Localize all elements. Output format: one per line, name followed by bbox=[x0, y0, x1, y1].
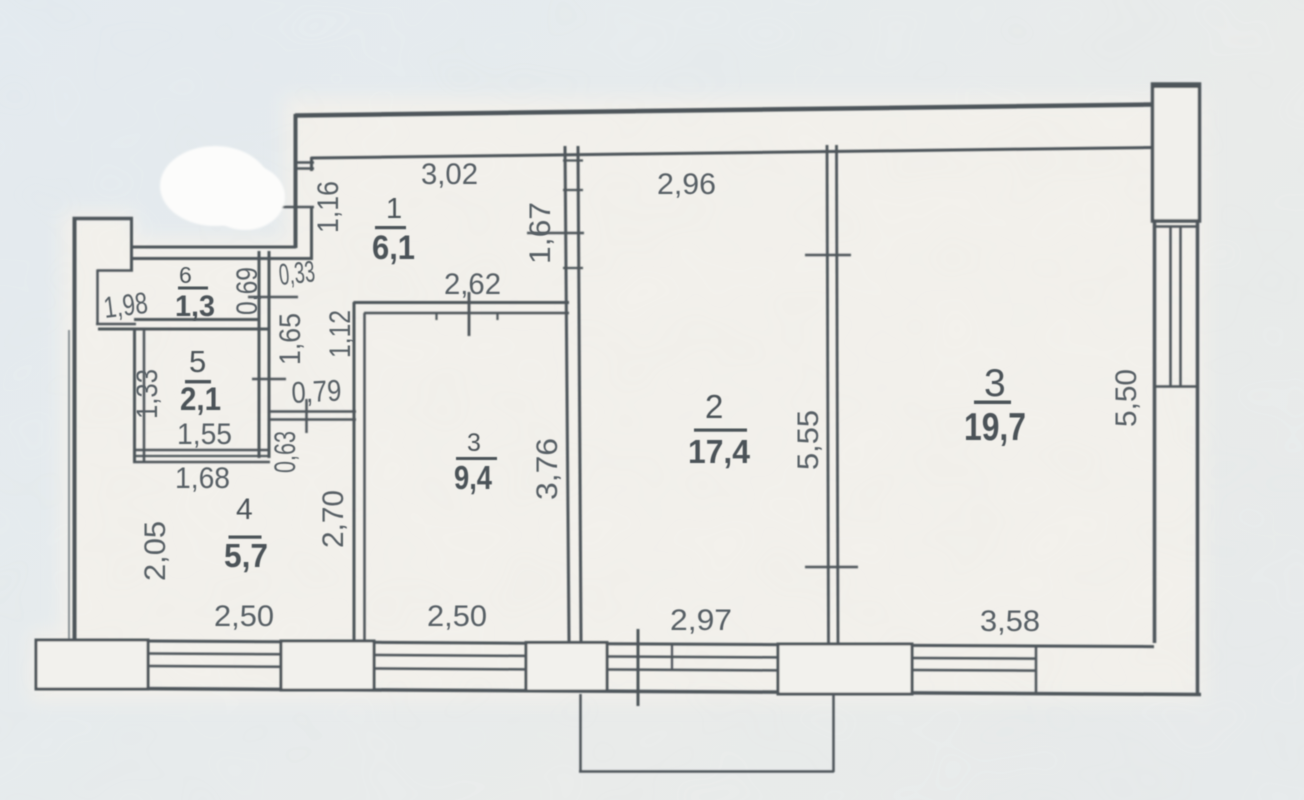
svg-text:3,02: 3,02 bbox=[421, 158, 478, 191]
svg-text:2,50: 2,50 bbox=[214, 600, 274, 633]
svg-text:5,50: 5,50 bbox=[1110, 369, 1143, 427]
svg-text:3,58: 3,58 bbox=[980, 605, 1040, 638]
svg-text:2,97: 2,97 bbox=[670, 604, 732, 637]
svg-text:5,7: 5,7 bbox=[224, 537, 268, 574]
svg-text:1,16: 1,16 bbox=[312, 181, 345, 233]
svg-text:1,3: 1,3 bbox=[175, 290, 215, 323]
svg-text:2,05: 2,05 bbox=[139, 521, 172, 581]
svg-text:1,98: 1,98 bbox=[102, 287, 150, 325]
svg-text:1,68: 1,68 bbox=[175, 462, 230, 495]
svg-text:3: 3 bbox=[467, 429, 481, 457]
svg-text:4: 4 bbox=[236, 493, 253, 526]
svg-text:2,62: 2,62 bbox=[444, 268, 501, 301]
svg-text:2,50: 2,50 bbox=[427, 600, 487, 633]
svg-text:1,12: 1,12 bbox=[324, 310, 357, 358]
svg-text:3: 3 bbox=[984, 362, 1006, 405]
svg-text:1,65: 1,65 bbox=[274, 313, 307, 365]
svg-text:6: 6 bbox=[179, 262, 192, 288]
svg-text:0,79: 0,79 bbox=[291, 374, 343, 410]
svg-text:2: 2 bbox=[705, 388, 723, 425]
svg-text:0,33: 0,33 bbox=[277, 255, 316, 292]
svg-text:6,1: 6,1 bbox=[372, 229, 415, 267]
svg-text:19,7: 19,7 bbox=[964, 406, 1026, 449]
svg-text:1,55: 1,55 bbox=[177, 418, 232, 451]
svg-text:0,63: 0,63 bbox=[269, 431, 302, 473]
svg-text:2,1: 2,1 bbox=[180, 381, 221, 417]
svg-text:1: 1 bbox=[386, 193, 402, 225]
svg-text:5: 5 bbox=[189, 344, 206, 379]
svg-text:2,96: 2,96 bbox=[657, 168, 716, 201]
svg-text:0,69: 0,69 bbox=[231, 267, 264, 315]
svg-text:5,55: 5,55 bbox=[792, 410, 825, 470]
svg-text:2,70: 2,70 bbox=[317, 490, 350, 548]
svg-text:3,76: 3,76 bbox=[531, 438, 564, 500]
svg-text:1,33: 1,33 bbox=[131, 369, 164, 419]
svg-text:9,4: 9,4 bbox=[454, 459, 493, 496]
svg-text:1,67: 1,67 bbox=[524, 202, 557, 264]
svg-text:17,4: 17,4 bbox=[688, 433, 751, 470]
